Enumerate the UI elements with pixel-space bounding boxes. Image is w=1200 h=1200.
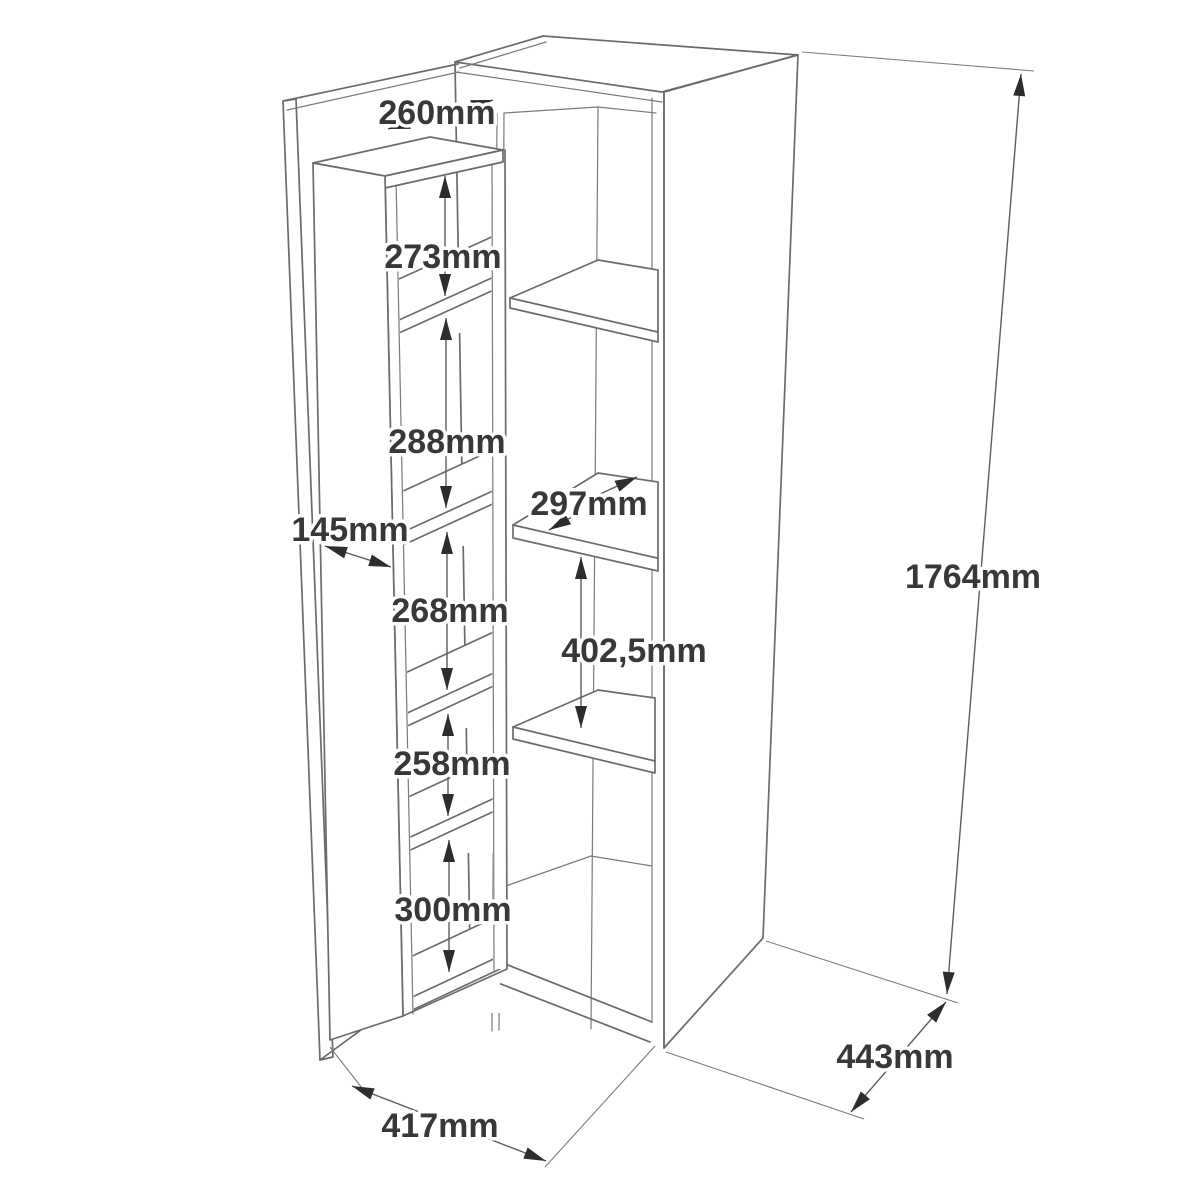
- rack-compartment-2-label: 288mm: [388, 423, 505, 461]
- rack-compartment-5-label: 300mm: [394, 891, 511, 929]
- dimension-cabinet-height: 1764mm: [766, 52, 1041, 1003]
- cabinet-dimension-diagram: 297mm 402,5mm: [0, 0, 1200, 1200]
- dimension-shelf-depth: 297mm: [530, 477, 647, 530]
- cabinet-depth-label: 443mm: [836, 1038, 953, 1076]
- rack-compartment-1-label: 273mm: [384, 238, 501, 276]
- cabinet-height-label: 1764mm: [905, 558, 1041, 596]
- shelf-depth-label: 297mm: [530, 485, 647, 523]
- cabinet-shelf-upper: [510, 260, 658, 342]
- rack-compartment-4-label: 258mm: [393, 745, 510, 783]
- shelf-spacing-label: 402,5mm: [561, 632, 707, 670]
- cabinet-right-panel: [664, 55, 798, 1048]
- dimension-rack-width: 260mm: [378, 94, 495, 132]
- rack-compartment-3-label: 268mm: [391, 592, 508, 630]
- cabinet-width-label: 417mm: [381, 1107, 498, 1145]
- rack-width-label: 260mm: [378, 94, 495, 132]
- dimension-cabinet-width: 417mm: [330, 1046, 655, 1167]
- rack-depth-label: 145mm: [291, 511, 408, 549]
- diagram-canvas: 297mm 402,5mm: [0, 0, 1200, 1200]
- dimension-cabinet-depth: 443mm: [666, 1002, 954, 1119]
